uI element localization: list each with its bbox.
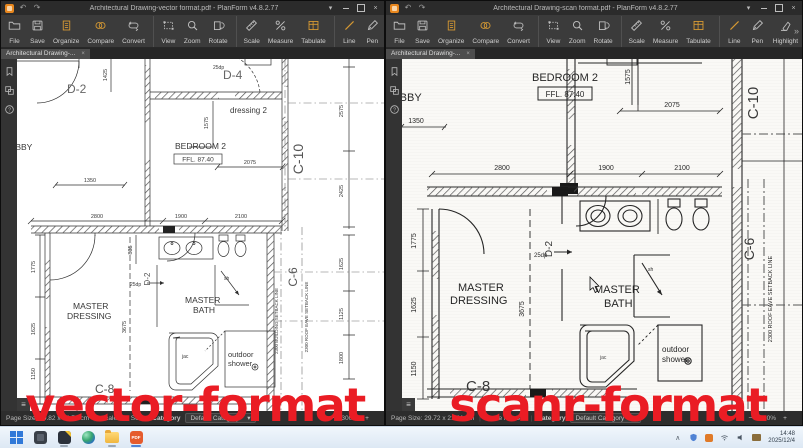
toolbar-button[interactable]: Pen (746, 16, 769, 47)
dim-label: 1625 (31, 323, 37, 335)
grid-label: D-2 (143, 272, 152, 285)
toolbar-button[interactable]: Measure (264, 16, 297, 47)
toolbar-icon (60, 19, 73, 32)
grid-label: C-6 (286, 267, 300, 287)
toolbar-icon (343, 19, 356, 32)
zoom-in-button[interactable]: + (363, 415, 371, 422)
dim-label: 2575 (339, 105, 345, 117)
dim-label: 1575 (625, 69, 632, 85)
taskbar-app-pdf[interactable]: PDF (128, 429, 144, 447)
tray-chevron-icon[interactable]: ∧ (673, 433, 682, 442)
toolbar-icon (245, 19, 258, 32)
toolbar-icon (692, 19, 705, 32)
bookmarks-icon[interactable] (389, 66, 400, 77)
tab-close-icon[interactable]: × (81, 49, 85, 59)
dim-label: 1150 (411, 361, 418, 376)
dim-label: 835 (128, 245, 134, 254)
toolbar-icon (779, 19, 792, 32)
dim-label: 1425 (103, 69, 109, 81)
dim-label: 1900 (598, 165, 614, 172)
toolbar-button[interactable]: Rotate (205, 16, 237, 47)
left-panel-tabs: ? (1, 59, 17, 411)
floor-plan-vector: D-2 D-4 25dp 1425 dressing 2 1575 LOBBY … (17, 59, 384, 411)
dim-label: 1625 (339, 258, 345, 270)
toolbar-icon (728, 19, 741, 32)
status-page-size: Page Size: 29.72 x 21.01 cm (391, 415, 474, 422)
grid-label: C-10 (745, 87, 762, 120)
taskbar-app-explorer[interactable] (104, 429, 120, 447)
grid-label: C-8 (466, 378, 490, 395)
toolbar-button[interactable]: Tabulate (682, 16, 720, 47)
minimize-button[interactable] (759, 4, 768, 13)
window-controls: ▾ × (744, 4, 798, 13)
dim-label: 1350 (84, 178, 96, 184)
toolbar-button[interactable]: Convert (503, 16, 539, 47)
folder-icon (105, 432, 119, 443)
zoom-level: 300% (341, 415, 358, 422)
dim-label: 2075 (664, 102, 680, 109)
room-label: shower (662, 355, 688, 364)
toolbar-button[interactable]: Line (723, 16, 746, 47)
zoom-controls: − 800% + (746, 415, 797, 422)
titlebar: ↶ ↷ Architectural Drawing-vector format.… (1, 1, 384, 15)
maximize-button[interactable] (356, 4, 365, 13)
panel-toggle-icon[interactable]: ≡ (17, 398, 30, 411)
toolbar-icon (512, 19, 525, 32)
redo-icon[interactable]: ↷ (32, 3, 42, 13)
dim-label: 1350 (408, 118, 424, 125)
room-label: FFL. 87.40 (546, 90, 585, 99)
dim-label: 3675 (122, 321, 128, 333)
bookmarks-icon[interactable] (4, 66, 15, 77)
clock-date: 2025/12/4 (768, 438, 795, 445)
taskbar-app-notes[interactable] (56, 429, 72, 447)
toolbar-button[interactable]: File (3, 16, 26, 47)
status-bar: Page Size: 29.72 x 21.01 cm | Scale Not … (386, 411, 802, 425)
start-button[interactable] (8, 429, 24, 447)
dim-label: 2100 (235, 214, 247, 220)
dim-label: 25dp (213, 65, 224, 71)
drawing-canvas-vector[interactable]: D-2 D-4 25dp 1425 dressing 2 1575 LOBBY … (17, 59, 384, 411)
redo-icon[interactable]: ↷ (417, 3, 427, 13)
setback-label: 2300 ROOF EAVE SETBACK LINE (768, 255, 774, 342)
toolbar-button[interactable]: Compare (83, 16, 118, 47)
toolbar-button[interactable]: Rotate (590, 16, 622, 47)
status-scale: Scale Not Set (101, 415, 141, 422)
room-label: outdoor (228, 350, 254, 359)
dim-label: 1775 (31, 261, 37, 273)
tab-label: Architectural Drawing-... (391, 49, 460, 59)
toolbar-icon (94, 19, 107, 32)
menu-caret-icon[interactable]: ▾ (326, 4, 335, 13)
document-tab[interactable]: Architectural Drawing-... × (386, 49, 475, 59)
caret-down-icon: ▾ (632, 414, 635, 422)
close-button[interactable]: × (789, 4, 798, 13)
room-label: MASTER (73, 301, 108, 311)
setback-label: 2300 BUILDING SETBACK LINE (274, 288, 279, 354)
toolbar-icon (630, 19, 643, 32)
zoom-level: 800% (759, 415, 776, 422)
toolbar-button[interactable]: Zoom (565, 16, 590, 47)
window-vector-format: ↶ ↷ Architectural Drawing-vector format.… (0, 0, 385, 426)
taskbar-clock[interactable]: 14:48 2025/12/4 (768, 431, 795, 445)
status-scale: Scale Not Set (486, 415, 526, 422)
room-label: dressing 2 (230, 106, 267, 115)
maximize-button[interactable] (774, 4, 783, 13)
toolbar-button[interactable]: Organize (434, 16, 468, 47)
toolbar-button[interactable]: Zoom (180, 16, 205, 47)
room-label: LOBBY (17, 142, 33, 152)
toolbar-button[interactable]: Measure (649, 16, 682, 47)
toolbar-icon (479, 19, 492, 32)
toolbar-button[interactable]: View (157, 16, 180, 47)
zoom-out-button[interactable]: − (328, 415, 336, 422)
menu-caret-icon[interactable]: ▾ (744, 4, 753, 13)
document-tab[interactable]: Architectural Drawing-... × (1, 49, 90, 59)
toolbar-icon (597, 19, 610, 32)
room-label: BATH (604, 298, 633, 310)
room-label: LOBBY (402, 92, 422, 104)
dim-label: 2800 (91, 214, 103, 220)
grid-label: C-6 (741, 238, 757, 261)
toolbar-icon (212, 19, 225, 32)
caret-down-icon: ▾ (247, 414, 250, 422)
toolbar-icon (416, 19, 429, 32)
category-dropdown[interactable]: Default Category ▾ (570, 413, 640, 423)
room-label: MASTER (458, 282, 504, 294)
toolbar-button[interactable]: View (542, 16, 565, 47)
toolbar-button[interactable]: Pen (361, 16, 384, 47)
windows-logo-icon (10, 431, 23, 444)
desktop: ↶ ↷ Architectural Drawing-vector format.… (0, 0, 803, 448)
pdf-app-icon: PDF (130, 431, 143, 444)
taskbar-app-dark[interactable] (32, 429, 48, 447)
zoom-in-button[interactable]: + (781, 415, 789, 422)
toolbar-icon (274, 19, 287, 32)
tab-bar: Architectural Drawing-... × (386, 48, 802, 59)
dim-label: 2800 (494, 165, 510, 172)
dim-label: 1575 (204, 117, 210, 129)
room-label: DRESSING (450, 295, 507, 307)
tray-folder-icon[interactable] (752, 434, 761, 441)
dim-label: 25dp (130, 282, 141, 288)
toolbar-button[interactable]: Compare (468, 16, 503, 47)
fixture-label: jac (599, 355, 607, 361)
dim-label: 1125 (339, 308, 345, 320)
toolbar-icon (127, 19, 140, 32)
fixture-label: jac (181, 354, 189, 360)
toolbar-icon (751, 19, 764, 32)
floor-plan-scan: LOBBY BEDROOM 2 FFL. 87.40 1350 1575 207… (402, 59, 802, 411)
titlebar: ↶ ↷ Architectural Drawing-scan format.pd… (386, 1, 802, 15)
room-label: DRESSING (67, 311, 111, 321)
room-label: MASTER (185, 295, 220, 305)
room-label: MASTER (594, 284, 640, 296)
setback-label: 2300 ROOF EAVE SETBACK LINE (304, 282, 309, 353)
toolbar-icon (31, 19, 44, 32)
dim-label: 1150 (31, 368, 37, 380)
toolbar: File Save Organize Compare Convert View (1, 15, 384, 48)
toolbar-icon (186, 19, 199, 32)
dim-label: 1625 (411, 297, 418, 313)
tray-orange-app-icon[interactable] (705, 434, 713, 442)
wifi-icon[interactable] (720, 433, 729, 442)
toolbar-icon (547, 19, 560, 32)
toolbar-button[interactable]: Line (338, 16, 361, 47)
category-label: Category (537, 415, 565, 422)
app-icon[interactable] (390, 4, 399, 13)
window-title: Architectural Drawing-vector format.pdf … (46, 5, 322, 12)
panel-toggle-icon[interactable]: ≡ (402, 398, 415, 411)
dim-label: 2425 (339, 185, 345, 197)
status-bar: Page Size: 50.82 x 66.78 cm | Scale Not … (1, 411, 384, 425)
toolbar-button[interactable]: Scale (625, 16, 649, 47)
tab-label: Architectural Drawing-... (6, 49, 75, 59)
speaker-icon[interactable] (736, 433, 745, 442)
edge-icon (82, 431, 95, 444)
dim-label: 1775 (411, 233, 418, 249)
svg-text:?: ? (8, 107, 11, 113)
grid-label: C-8 (95, 382, 115, 396)
room-label: shower (228, 359, 253, 368)
toolbar-button[interactable]: Scale (240, 16, 264, 47)
zoom-out-button[interactable]: − (746, 415, 754, 422)
dim-label: 1900 (175, 214, 187, 220)
taskbar-app-edge[interactable] (80, 429, 96, 447)
tab-close-icon[interactable]: × (466, 49, 470, 59)
toolbar-button[interactable]: Convert (118, 16, 154, 47)
shield-icon[interactable] (689, 433, 698, 442)
dim-label: 2100 (674, 165, 690, 172)
undo-icon[interactable]: ↶ (18, 3, 28, 13)
fixture-label: sh (224, 276, 230, 282)
undo-icon[interactable]: ↶ (403, 3, 413, 13)
toolbar-button[interactable]: Save (26, 16, 49, 47)
toolbar-icon (366, 19, 379, 32)
grid-label: D-4 (223, 68, 243, 82)
window-controls: ▾ × (326, 4, 380, 13)
toolbar-button[interactable]: Save (411, 16, 434, 47)
system-tray: ∧ 14:48 2025/12/4 (673, 431, 795, 445)
room-label: BATH (193, 305, 215, 315)
toolbar-icon (571, 19, 584, 32)
room-label: BEDROOM 2 (532, 72, 598, 84)
app-icon[interactable] (5, 4, 14, 13)
toolbar-button[interactable]: Organize (49, 16, 83, 47)
dim-label: 1800 (339, 352, 345, 364)
toolbar-button[interactable]: Tabulate (297, 16, 335, 47)
clock-time: 14:48 (768, 431, 795, 438)
toolbar: File Save Organize Compare Convert View (386, 15, 802, 48)
room-label: BEDROOM 2 (175, 141, 226, 151)
toolbar-icon (162, 19, 175, 32)
toolbar-icon (307, 19, 320, 32)
toolbar-overflow-icon[interactable]: » (794, 26, 799, 36)
toolbar-icon (393, 19, 406, 32)
svg-text:?: ? (393, 107, 396, 113)
windows-taskbar: PDF ∧ 14:48 2025/12/4 (0, 426, 803, 448)
window-title: Architectural Drawing-scan format.pdf - … (431, 5, 740, 12)
dim-label: 3675 (519, 301, 526, 317)
toolbar-icon (659, 19, 672, 32)
thumbnails-icon[interactable] (4, 85, 15, 96)
dim-label: 2075 (244, 160, 256, 166)
help-icon[interactable]: ? (4, 104, 15, 115)
toolbar-button[interactable]: File (388, 16, 411, 47)
left-panel-tabs: ? (386, 59, 402, 411)
toolbar-icon (8, 19, 21, 32)
minimize-button[interactable] (341, 4, 350, 13)
grid-label: C-10 (290, 144, 306, 175)
close-button[interactable]: × (371, 4, 380, 13)
thumbnails-icon[interactable] (389, 85, 400, 96)
fixture-label: sh (648, 267, 654, 273)
grid-label: D-2 (67, 82, 87, 96)
status-page-size: Page Size: 50.82 x 66.78 cm (6, 415, 89, 422)
room-label: outdoor (662, 345, 689, 354)
drawing-canvas-scan[interactable]: LOBBY BEDROOM 2 FFL. 87.40 1350 1575 207… (402, 59, 802, 411)
dim-label: 25dp (534, 253, 548, 259)
category-dropdown[interactable]: Default Category ▾ (185, 413, 255, 423)
room-label: FFL. 87.40 (182, 157, 214, 164)
toolbar-icon (445, 19, 458, 32)
tab-bar: Architectural Drawing-... × (1, 48, 384, 59)
zoom-controls: − 300% + (328, 415, 379, 422)
help-icon[interactable]: ? (389, 104, 400, 115)
category-label: Category (152, 415, 180, 422)
window-scan-format: ↶ ↷ Architectural Drawing-scan format.pd… (385, 0, 803, 426)
